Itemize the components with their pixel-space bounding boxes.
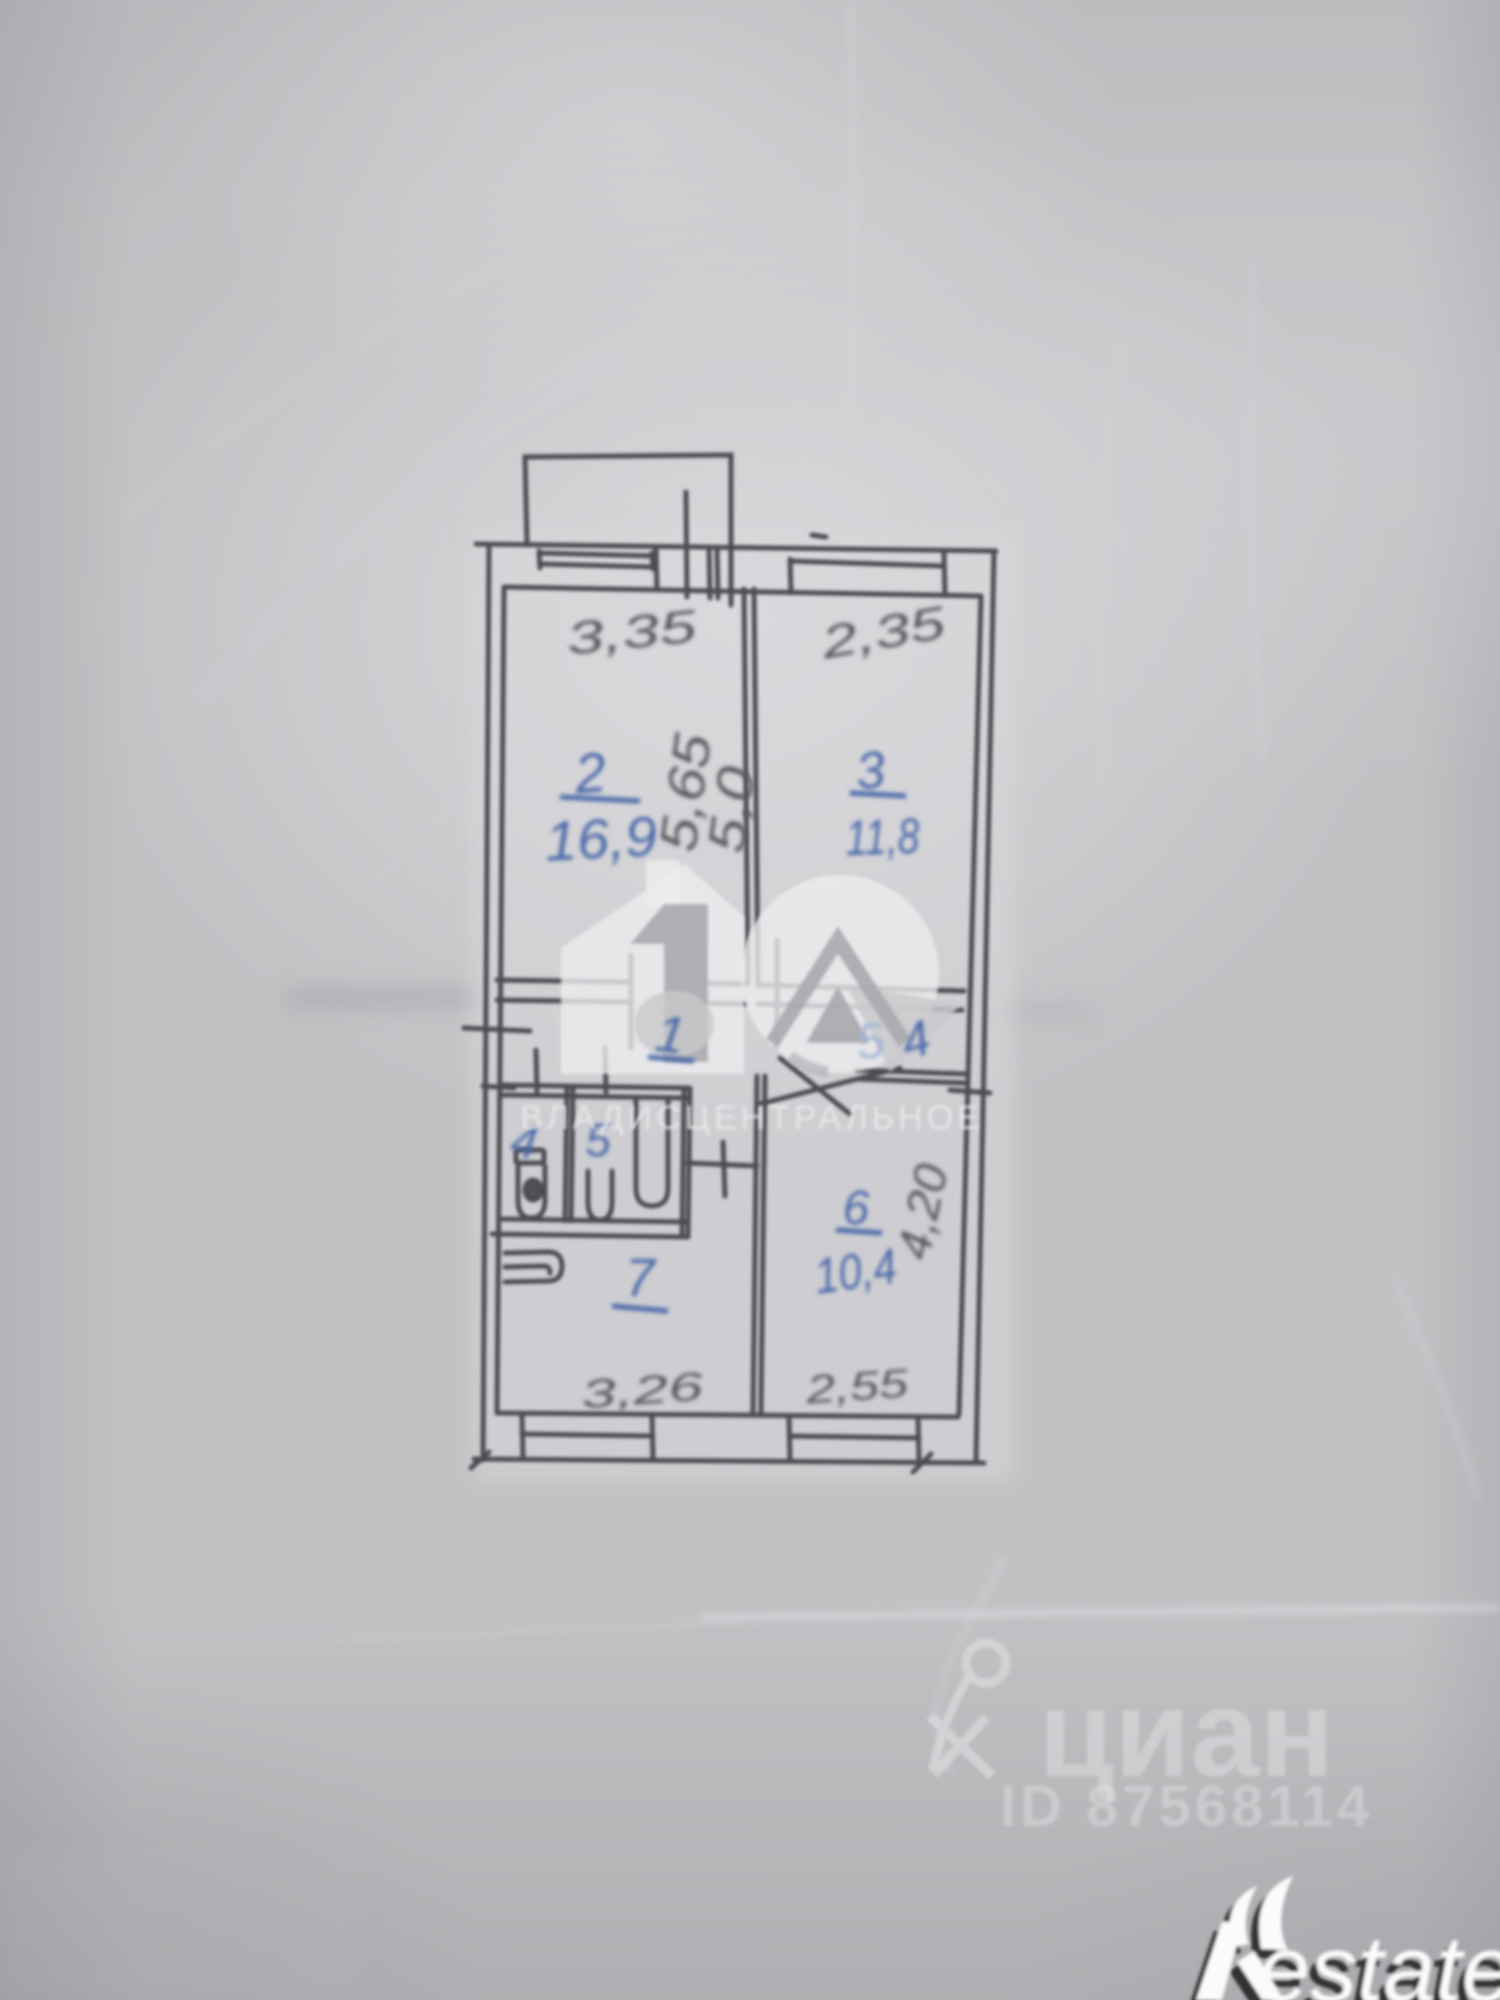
svg-text:5,0: 5,0 [697,763,766,856]
svg-text:10,4: 10,4 [811,1238,900,1305]
svg-text:6: 6 [843,1182,870,1235]
svg-text:3,26: 3,26 [580,1365,706,1417]
svg-text:2,55: 2,55 [803,1361,910,1412]
svg-text:5: 5 [854,1012,887,1070]
svg-text:ID 87568114: ID 87568114 [1000,1774,1373,1839]
svg-text:11,8: 11,8 [844,808,920,867]
svg-text:7: 7 [625,1248,657,1308]
svg-text:16,9: 16,9 [543,804,658,873]
svg-text:ВЛАДИСЦЕНТРАЛЬНОЕ: ВЛАДИСЦЕНТРАЛЬНОЕ [520,1099,984,1137]
svg-text:estate: estate [1258,1916,1500,2000]
